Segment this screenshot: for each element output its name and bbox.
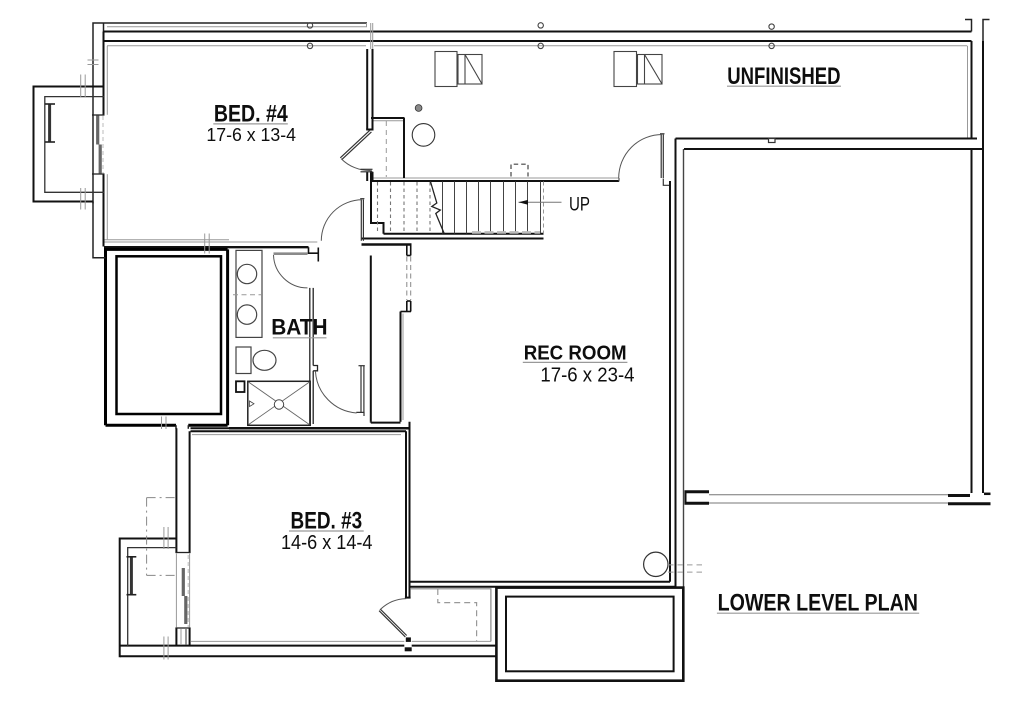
- svg-text:BATH: BATH: [271, 314, 327, 339]
- svg-text:17-6 x 13-4: 17-6 x 13-4: [206, 125, 296, 146]
- svg-text:17-6 x 23-4: 17-6 x 23-4: [540, 365, 634, 387]
- svg-text:REC ROOM: REC ROOM: [524, 343, 627, 365]
- svg-text:LOWER LEVEL PLAN: LOWER LEVEL PLAN: [718, 590, 918, 617]
- svg-text:UP: UP: [569, 193, 590, 215]
- svg-text:14-6 x 14-4: 14-6 x 14-4: [281, 532, 373, 554]
